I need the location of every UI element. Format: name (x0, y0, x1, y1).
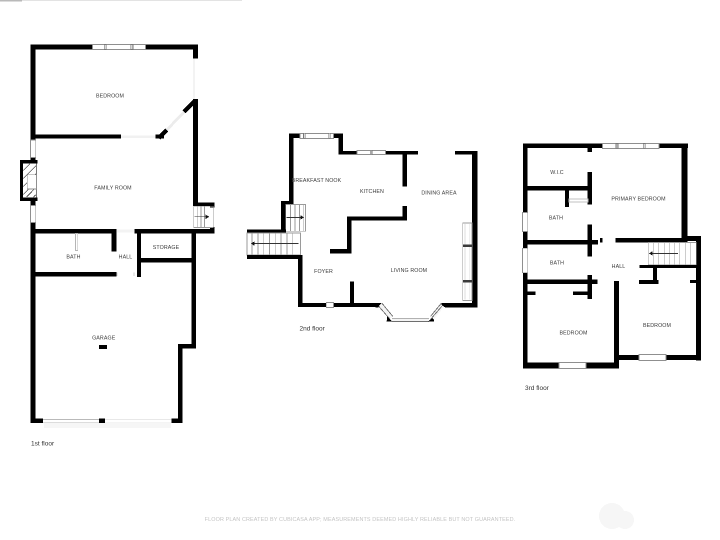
svg-text:BATH: BATH (550, 260, 564, 266)
svg-text:HALL: HALL (612, 264, 626, 270)
svg-text:BATH: BATH (66, 255, 80, 261)
svg-text:BEDROOM: BEDROOM (559, 331, 587, 337)
svg-text:BEDROOM: BEDROOM (643, 323, 671, 329)
svg-text:FOYER: FOYER (314, 269, 333, 275)
svg-text:KITCHEN: KITCHEN (360, 189, 384, 195)
svg-text:2nd floor: 2nd floor (300, 326, 326, 333)
svg-text:BREAKFAST NOOK: BREAKFAST NOOK (292, 178, 342, 184)
svg-text:PRIMARY BEDROOM: PRIMARY BEDROOM (611, 196, 665, 202)
svg-text:W.I.C: W.I.C (550, 170, 564, 176)
svg-text:BEDROOM: BEDROOM (96, 94, 124, 100)
svg-text:BATH: BATH (549, 215, 563, 221)
svg-text:FLOOR PLAN CREATED BY CUBICASA: FLOOR PLAN CREATED BY CUBICASA APP; MEAS… (205, 517, 516, 523)
svg-text:3rd floor: 3rd floor (525, 385, 550, 392)
svg-text:HALL: HALL (119, 254, 133, 260)
svg-text:FAMILY ROOM: FAMILY ROOM (94, 185, 131, 191)
svg-text:STORAGE: STORAGE (153, 245, 180, 251)
svg-text:DINING AREA: DINING AREA (421, 190, 457, 196)
svg-text:LIVING ROOM: LIVING ROOM (391, 268, 427, 274)
svg-text:1st floor: 1st floor (31, 440, 55, 447)
svg-text:GARAGE: GARAGE (92, 336, 116, 342)
